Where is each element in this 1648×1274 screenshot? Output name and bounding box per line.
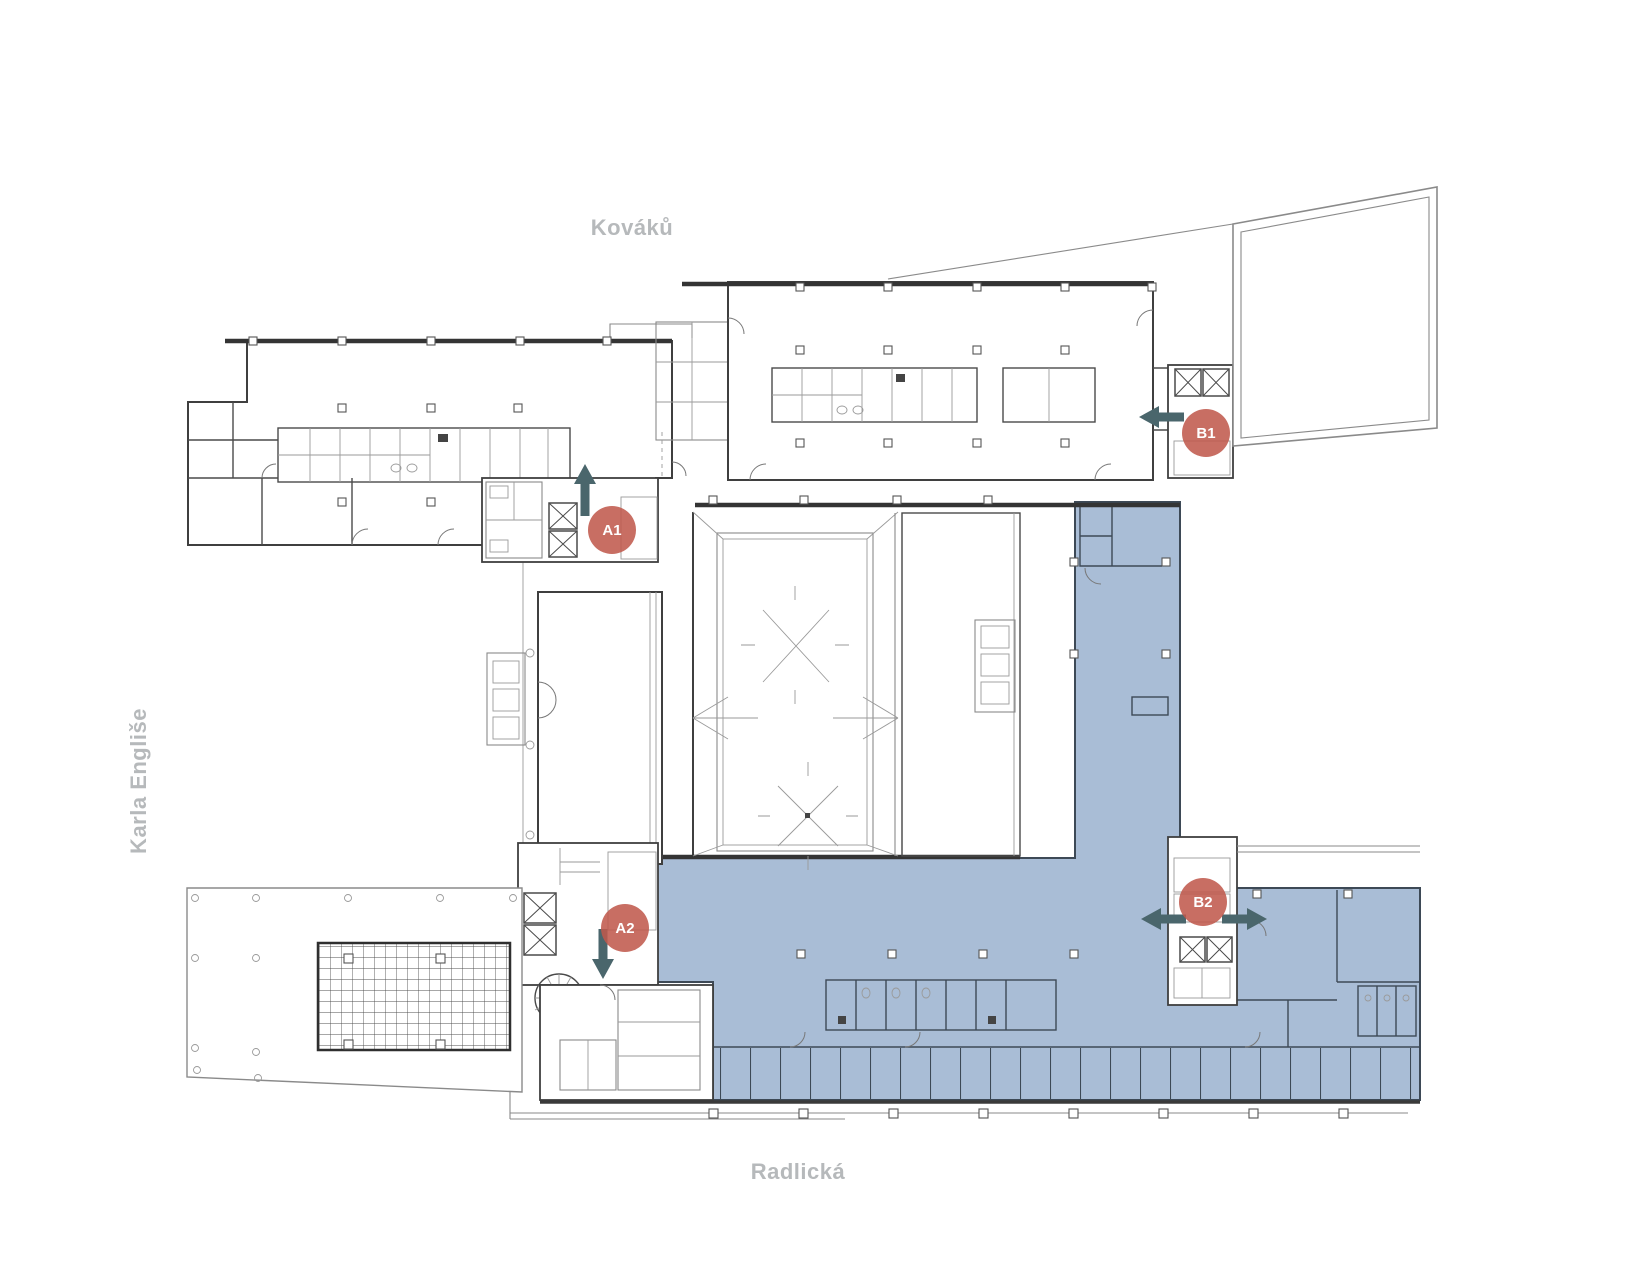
parcel-bottom-left: [187, 888, 522, 1092]
terrace-grid: [318, 943, 510, 1050]
shaft-squares-right: [975, 620, 1015, 712]
marker-a2-label: A2: [615, 920, 634, 937]
shaft-squares-left: [487, 653, 525, 745]
floor-plan-canvas: A1 A2 B1 B2: [0, 0, 1648, 1274]
marker-b1-label: B1: [1196, 425, 1215, 442]
marker-b2-label: B2: [1193, 894, 1212, 911]
marker-a2[interactable]: A2: [601, 904, 649, 952]
marker-b1[interactable]: B1: [1182, 409, 1230, 457]
building-top-middle: [682, 282, 1168, 480]
marker-b2[interactable]: B2: [1179, 878, 1227, 926]
terrace-edge-right: [1237, 846, 1420, 852]
balcony-cells: [660, 1048, 1418, 1099]
room-center-left: [523, 560, 662, 864]
roof-cross-icon: [741, 586, 858, 870]
marker-a1-label: A1: [602, 522, 621, 539]
marker-a1[interactable]: A1: [588, 506, 636, 554]
floor-plan-page: Kováků Karla Engliše Radlická: [0, 0, 1648, 1274]
rooms-bottom-center: [540, 985, 713, 1100]
highlighted-area[interactable]: [656, 502, 1420, 1100]
